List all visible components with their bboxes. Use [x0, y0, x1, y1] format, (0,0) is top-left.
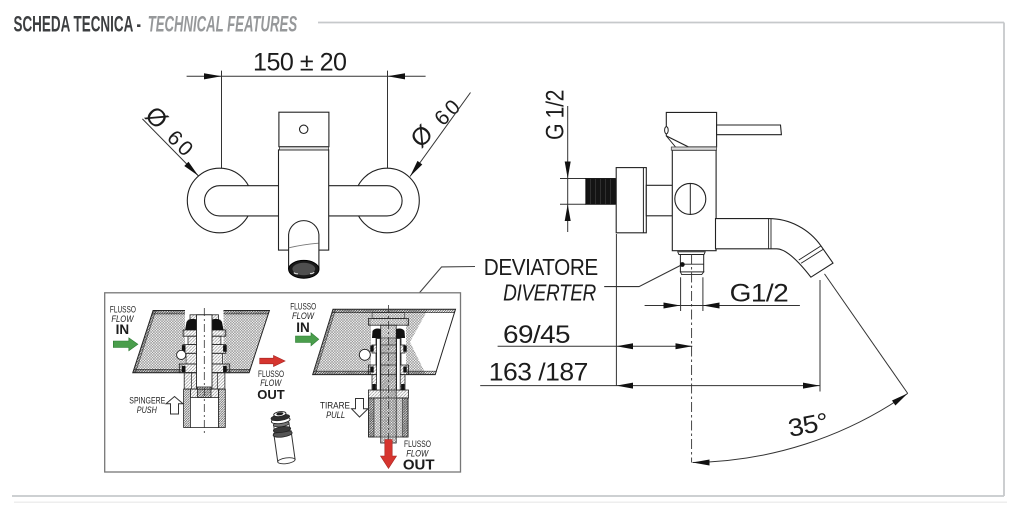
svg-text:DEVIATORE: DEVIATORE [484, 254, 598, 280]
svg-text:PUSH: PUSH [137, 405, 157, 416]
svg-text:PULL: PULL [326, 410, 345, 421]
svg-text:69/45: 69/45 [503, 321, 570, 349]
svg-text:OUT: OUT [257, 387, 285, 402]
svg-text:G1/2: G1/2 [730, 280, 789, 308]
svg-text:G 1/2: G 1/2 [542, 90, 570, 140]
svg-text:IN: IN [296, 320, 310, 335]
svg-text:163 /187: 163 /187 [489, 358, 588, 386]
svg-text:IN: IN [116, 322, 130, 337]
svg-text:DIVERTER: DIVERTER [503, 279, 596, 305]
svg-text:150 ± 20: 150 ± 20 [253, 48, 347, 76]
svg-text:SCHEDA TECNICA -: SCHEDA TECNICA - [14, 12, 142, 37]
svg-text:TECHNICAL FEATURES: TECHNICAL FEATURES [148, 12, 297, 37]
svg-text:OUT: OUT [403, 456, 435, 473]
